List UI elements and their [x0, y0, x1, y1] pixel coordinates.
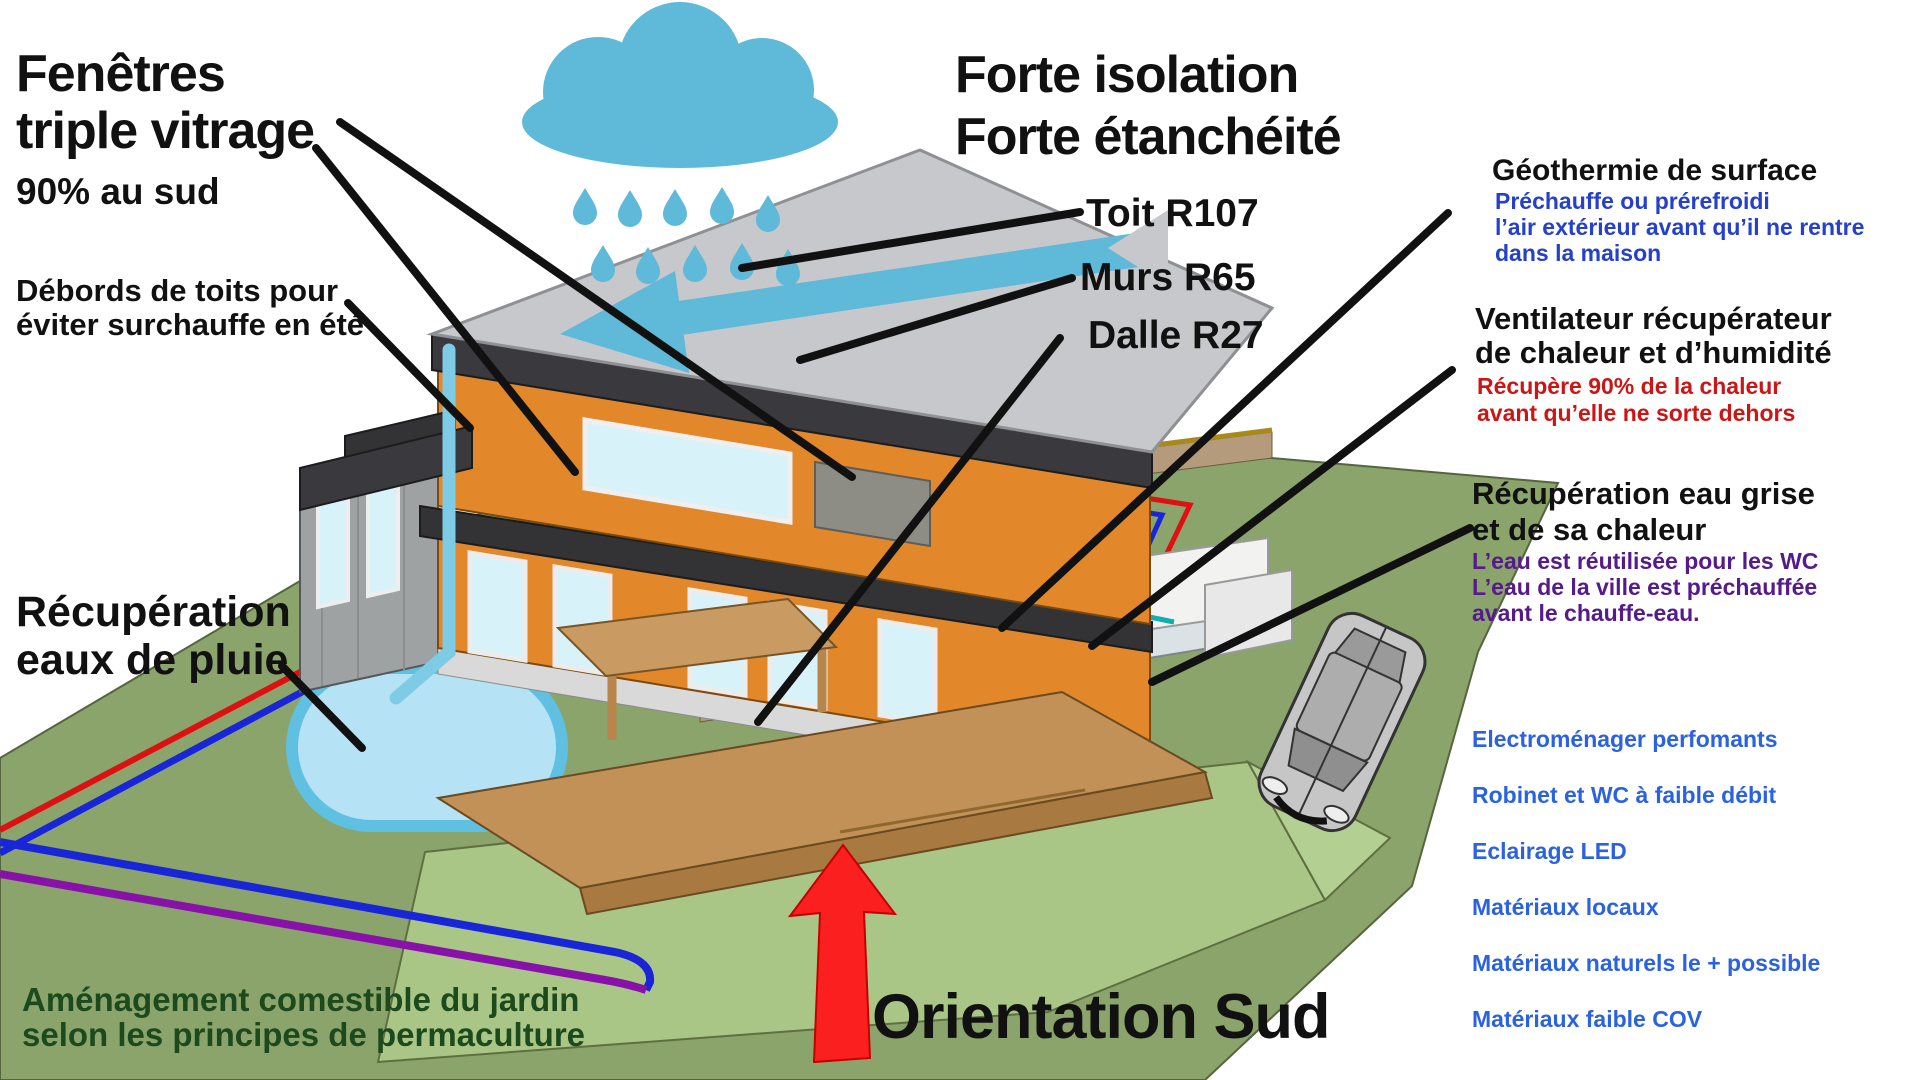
insulation-title: Forte isolation Forte étanchéité: [955, 44, 1341, 168]
raindrop: [663, 189, 687, 226]
raindrop: [710, 187, 734, 224]
geothermal-detail: Préchauffe ou prérefroidi l’air extérieu…: [1495, 188, 1864, 266]
roof-r-value-label: Toit R107: [1086, 192, 1259, 236]
extra-feature-item: Matériaux locaux: [1472, 893, 1820, 921]
hrv-detail: Récupère 90% de la chaleur avant qu’elle…: [1477, 373, 1795, 427]
eco-house-diagram: Fenêtres triple vitrage 90% au sud Débor…: [0, 0, 1917, 1080]
extra-features-list: Electroménager perfomants Robinet et WC …: [1472, 697, 1820, 1080]
greywater-detail: L’eau est réutilisée pour les WC L’eau d…: [1472, 548, 1818, 626]
windows-sublabel: 90% au sud: [16, 172, 220, 212]
overhangs-label: Débords de toits pour éviter surchauffe …: [16, 274, 364, 342]
raindrop: [573, 188, 597, 225]
extra-feature-item: Electroménager perfomants: [1472, 725, 1820, 753]
rain-cloud: [522, 2, 838, 168]
hrv-title: Ventilateur récupérateur de chaleur et d…: [1475, 302, 1832, 370]
greywater-title: Récupération eau grise et de sa chaleur: [1472, 476, 1815, 548]
garden-label: Aménagement comestible du jardin selon l…: [22, 982, 585, 1052]
extra-feature-item: Robinet et WC à faible débit: [1472, 781, 1820, 809]
cloud-base: [522, 76, 838, 168]
rainwater-label: Récupération eaux de pluie: [16, 588, 291, 684]
slab-r-value-label: Dalle R27: [1088, 314, 1264, 358]
extra-feature-item: Matériaux naturels le + possible: [1472, 949, 1820, 977]
extra-feature-item: Matériaux faible COV: [1472, 1005, 1820, 1033]
extra-feature-item: ...: [1472, 1073, 1820, 1080]
extra-feature-item: Eclairage LED: [1472, 837, 1820, 865]
lower-window: [880, 621, 935, 724]
orientation-label: Orientation Sud: [872, 984, 1330, 1050]
geothermal-title: Géothermie de surface: [1492, 154, 1817, 188]
lower-window: [470, 553, 525, 660]
raindrop: [756, 195, 780, 232]
walls-r-value-label: Murs R65: [1080, 256, 1256, 300]
windows-label: Fenêtres triple vitrage: [16, 46, 314, 160]
raindrop: [591, 245, 615, 282]
raindrop: [618, 190, 642, 227]
